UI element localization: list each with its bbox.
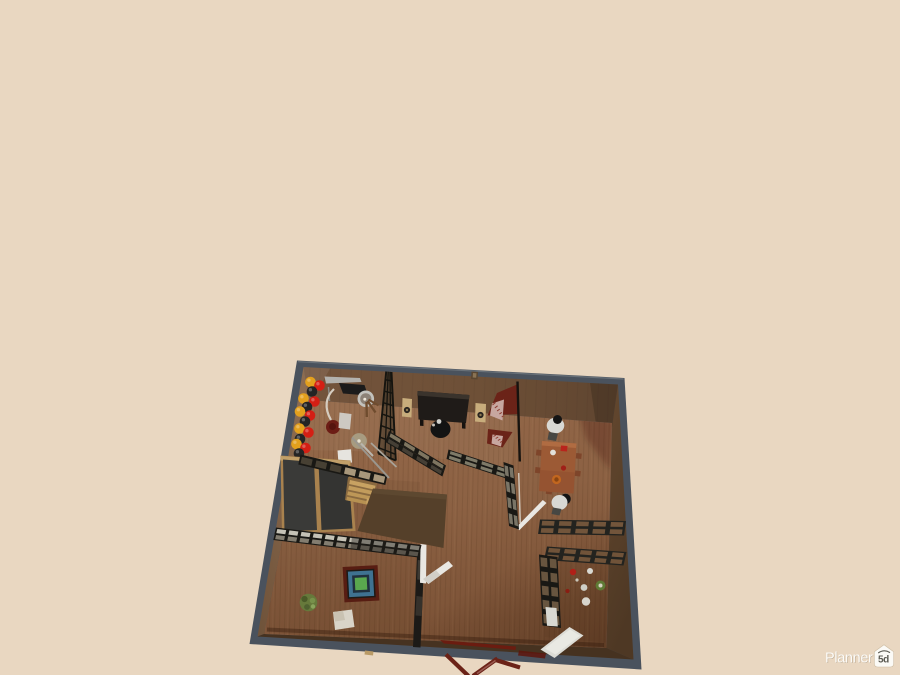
svg-text:Planner: Planner bbox=[825, 651, 873, 667]
svg-text:5d: 5d bbox=[878, 655, 889, 666]
